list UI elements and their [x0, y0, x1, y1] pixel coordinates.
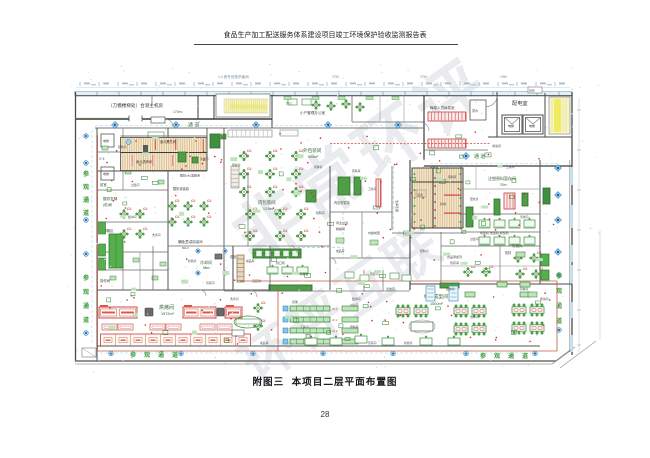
svg-text:成品库: 成品库 [246, 259, 255, 263]
svg-text:（刀模楼梯处）合测主机房: （刀模楼梯处）合测主机房 [108, 102, 164, 109]
svg-text:成型机 成型机 成型机: 成型机 成型机 成型机 [480, 230, 509, 235]
svg-text:检验室: 检验室 [300, 272, 309, 276]
svg-text:配电室: 配电室 [512, 99, 528, 107]
svg-text:22.2: 22.2 [332, 318, 338, 322]
svg-text:暂存间: 暂存间 [450, 260, 459, 265]
svg-text:包装线: 包装线 [252, 278, 261, 283]
svg-text:面点烘烤间: 面点烘烤间 [136, 159, 152, 164]
svg-text:原料库: 原料库 [448, 175, 457, 179]
svg-text:规格(里)袋包装间: 规格(里)袋包装间 [178, 239, 202, 244]
svg-text:茶水: 茶水 [472, 108, 479, 113]
svg-text:内包材暂存: 内包材暂存 [334, 200, 351, 205]
svg-text:配料间: 配料间 [420, 249, 429, 253]
svg-text:1972m²: 1972m² [161, 312, 175, 316]
svg-text:清洗间: 清洗间 [200, 157, 209, 161]
svg-text:内包装间: 内包装间 [258, 199, 276, 206]
svg-text:风淋室: 风淋室 [314, 165, 323, 169]
svg-text:洗手间: 洗手间 [470, 315, 479, 319]
svg-text:缓冲间: 缓冲间 [540, 297, 549, 301]
svg-text:道: 道 [83, 316, 89, 324]
svg-text:检验室: 检验室 [188, 259, 197, 263]
svg-text:面点蒸煮间: 面点蒸煮间 [160, 139, 176, 144]
svg-text:道: 道 [83, 209, 89, 217]
svg-text:操作间: 操作间 [100, 278, 111, 283]
svg-text:洗手间: 洗手间 [152, 233, 161, 237]
svg-text:风淋室: 风淋室 [520, 287, 529, 291]
svg-text:办公: 办公 [286, 100, 292, 105]
svg-text:缓冲间: 缓冲间 [352, 297, 361, 301]
svg-text:通: 通 [158, 351, 164, 359]
svg-text:外包装间: 外包装间 [303, 147, 322, 154]
svg-text:电梯: 电梯 [508, 123, 514, 128]
svg-text:洁净走廊: 洁净走廊 [395, 200, 400, 212]
svg-text:佐料: 佐料 [505, 250, 512, 255]
svg-text:过渡间: 过渡间 [131, 183, 140, 187]
svg-text:60m²: 60m² [182, 246, 189, 250]
svg-text:原料库: 原料库 [350, 325, 359, 329]
svg-text:观: 观 [144, 351, 150, 359]
svg-text:1500m²: 1500m² [430, 302, 444, 306]
svg-text:非常环评: 非常环评 [220, 45, 506, 277]
svg-text:(前)间: (前)间 [103, 202, 113, 207]
svg-text:电梯: 电梯 [103, 138, 109, 143]
svg-text:道: 道 [172, 351, 178, 359]
svg-text:制袋间: 制袋间 [336, 226, 345, 231]
svg-text:酸奶发酵: 酸奶发酵 [103, 196, 118, 201]
svg-text:冷却间: 冷却间 [200, 259, 212, 265]
svg-text:清洗间: 清洗间 [386, 287, 395, 291]
svg-text:包装间: 包装间 [512, 243, 523, 248]
svg-text:电梯: 电梯 [103, 171, 109, 176]
svg-text:通 道: 通 道 [188, 122, 199, 129]
svg-text:2750: 2750 [420, 75, 427, 79]
svg-text:内袋成型: 内袋成型 [368, 230, 380, 235]
svg-text:通: 通 [83, 302, 89, 310]
svg-text:1950: 1950 [500, 75, 507, 79]
svg-text:酸奶(大)发酵间: 酸奶(大)发酵间 [180, 173, 200, 178]
svg-text:原料库: 原料库 [352, 169, 361, 173]
svg-text:货架: 货架 [292, 299, 298, 304]
svg-text:参: 参 [82, 170, 89, 178]
svg-text:900m²: 900m² [308, 155, 319, 159]
svg-text:更衣室: 更衣室 [470, 197, 479, 201]
svg-text:淋浴间: 淋浴间 [492, 143, 501, 148]
svg-text:小产管理办公室: 小产管理办公室 [300, 110, 326, 115]
svg-text:蒸煮: 蒸煮 [417, 192, 423, 197]
svg-text:梅菜人员休息室: 梅菜人员休息室 [430, 105, 455, 110]
svg-text:风淋室: 风淋室 [430, 165, 439, 169]
svg-text:更衣室: 更衣室 [446, 287, 455, 291]
svg-text:清洗间: 清洗间 [520, 215, 529, 219]
svg-text:暂存间: 暂存间 [206, 281, 215, 285]
svg-text:班组: 班组 [529, 89, 535, 93]
svg-text:13.5m²: 13.5m² [263, 207, 274, 211]
svg-text:观: 观 [83, 288, 89, 296]
svg-text:暂存间: 暂存间 [368, 341, 377, 345]
svg-text:洗手间: 洗手间 [230, 297, 239, 301]
svg-text:参: 参 [82, 274, 89, 282]
svg-text:1人食专效核杀菌间: 1人食专效核杀菌间 [218, 74, 249, 79]
svg-text:烘烤间: 烘烤间 [159, 304, 174, 311]
svg-text:电梯: 电梯 [529, 123, 535, 128]
svg-text:成品库: 成品库 [336, 249, 345, 253]
svg-text:37m²: 37m² [500, 183, 507, 187]
svg-text:配料间: 配料间 [118, 145, 127, 149]
svg-text:参: 参 [555, 272, 562, 280]
svg-text:检验室: 检验室 [404, 341, 413, 345]
svg-text:烘烤: 烘烤 [440, 201, 446, 206]
svg-text:封口机: 封口机 [276, 260, 285, 265]
svg-text:工具间: 工具间 [300, 325, 309, 329]
svg-text:更衣室: 更衣室 [232, 163, 241, 167]
svg-text:3~6: 3~6 [99, 157, 105, 161]
svg-text:参: 参 [129, 351, 136, 359]
svg-text:通 道: 通 道 [474, 153, 485, 160]
svg-text:缓冲间: 缓冲间 [128, 215, 137, 219]
svg-text:170m²: 170m² [173, 110, 183, 114]
svg-text:22.2: 22.2 [332, 307, 338, 311]
svg-text:通: 通 [83, 196, 89, 204]
svg-text:前室: 前室 [100, 182, 107, 187]
svg-text:86m²: 86m² [203, 266, 210, 270]
svg-text:工具间: 工具间 [506, 165, 515, 169]
svg-text:配料间: 配料间 [316, 211, 325, 215]
svg-text:观: 观 [83, 183, 89, 191]
svg-text:过渡间: 过渡间 [470, 237, 479, 241]
svg-text:酸奶灌装线: 酸奶灌装线 [173, 186, 190, 191]
svg-text:成品库: 成品库 [260, 341, 269, 345]
svg-text:工具间: 工具间 [368, 187, 377, 191]
svg-text:2750: 2750 [332, 75, 339, 79]
svg-text:22.2: 22.2 [332, 329, 338, 333]
